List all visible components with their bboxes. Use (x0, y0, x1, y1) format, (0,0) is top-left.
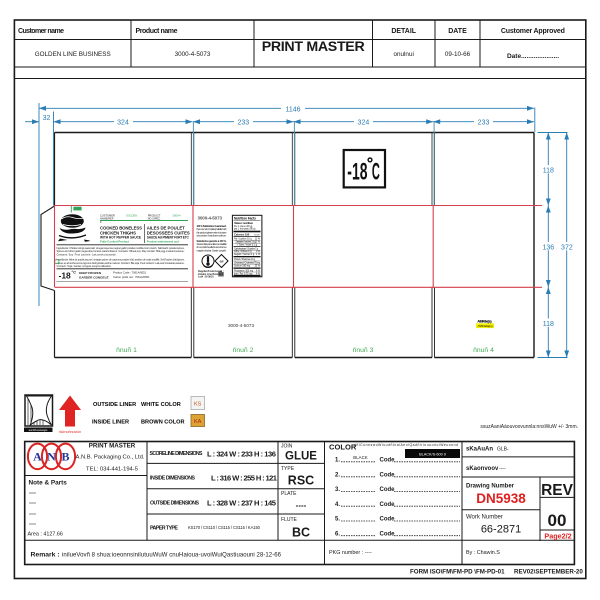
svg-text:GLB-: GLB- (497, 447, 509, 453)
svg-text:NO./SPEC :: NO./SPEC : (148, 216, 162, 220)
svg-text:Per 1 piece (90 g): Per 1 piece (90 g) (234, 225, 252, 228)
svg-text:GOLDEN: GOLDEN (126, 214, 137, 218)
svg-text:DATE: DATE (448, 28, 467, 35)
svg-text:By : Chawin.S: By : Chawin.S (466, 550, 500, 556)
svg-text:DETAIL: DETAIL (391, 28, 416, 35)
svg-text:Customer Approved: Customer Approved (501, 28, 565, 35)
svg-text:3000-4-5073: 3000-4-5073 (228, 323, 254, 328)
svg-text:PLATE: PLATE (281, 491, 297, 497)
svg-text:324: 324 (358, 120, 370, 127)
svg-text:ňnuñ 2: ňnuñ 2 (233, 347, 254, 354)
svg-text:09-10-66: 09-10-66 (445, 51, 471, 58)
svg-text:COLOR: COLOR (329, 443, 357, 452)
svg-text:BLACK: BLACK (353, 455, 367, 460)
svg-text:REV02\SEPTEMBER-20: REV02\SEPTEMBER-20 (514, 569, 583, 576)
svg-text:3.: 3. (335, 487, 340, 493)
svg-text:OUTSIDE DIMENSIONS: OUTSIDE DIMENSIONS (150, 501, 200, 507)
svg-text:1 %: 1 % (256, 254, 260, 256)
svg-text:Note & Parts: Note & Parts (29, 480, 68, 487)
svg-text:3000-4-5073: 3000-4-5073 (175, 51, 211, 58)
svg-text:Drawing Number: Drawing Number (466, 484, 515, 490)
svg-text:sKaonvoov: sKaonvoov (466, 466, 499, 472)
svg-text:onulnui: onulnui (394, 51, 414, 58)
svg-text:13 %: 13 % (255, 242, 260, 244)
svg-text:Code: Code (380, 531, 396, 537)
svg-text:Date.....................: Date..................... (507, 53, 559, 60)
svg-text:233: 233 (478, 120, 490, 127)
svg-text:inilueVovñ 8 shua:ioeonnsinilu: inilueVovñ 8 shua:ioeonnsinilutuuWuW cnu… (62, 553, 282, 559)
svg-text:sKaAuAn: sKaAuAn (466, 447, 493, 453)
svg-text:Contains: Soy. Peut contenir:: Contains: Soy. Peut contenir: Lait,oeufs… (57, 252, 117, 256)
svg-text:KS170 / CS110 / CS115 / CS115: KS170 / CS110 / CS115 / CS115 / KA150 (188, 525, 261, 530)
svg-text:----: ---- (296, 501, 307, 510)
svg-text:Calories 190: Calories 190 (234, 233, 250, 237)
svg-text:BLACK/S-600 9: BLACK/S-600 9 (419, 453, 446, 457)
svg-text:118: 118 (543, 321, 554, 328)
svg-text:Cholesterol / Cholestérol 75 m: Cholesterol / Cholestérol 75 mg (234, 261, 261, 264)
svg-text:00: 00 (548, 511, 567, 530)
svg-text:A&B Packaging: A&B Packaging (477, 320, 492, 324)
svg-text:-18: -18 (347, 159, 367, 186)
svg-text:Nutrition Facts: Nutrition Facts (234, 216, 256, 220)
svg-text:6.: 6. (335, 531, 340, 537)
svg-text:GARDER CONGELÉ: GARDER CONGELÉ (79, 275, 109, 280)
svg-text:PRINT MASTER: PRINT MASTER (262, 39, 365, 55)
svg-text:TEL: 034-441-194-5: TEL: 034-441-194-5 (86, 467, 138, 473)
svg-text:°C: °C (72, 270, 77, 275)
svg-text:3000-4: 3000-4 (173, 214, 182, 218)
svg-text:A: A (33, 450, 42, 464)
svg-text:NAME/REF :: NAME/REF : (100, 216, 115, 220)
svg-text:RSC: RSC (288, 474, 314, 488)
svg-text:of purchase. Keep frozen until: of purchase. Keep frozen until use. (197, 235, 227, 238)
svg-text:13 %: 13 % (255, 239, 260, 241)
svg-text:FLUTE: FLUTE (281, 517, 298, 523)
svg-text:Code: Code (380, 458, 396, 464)
svg-text:BC: BC (292, 526, 310, 540)
svg-text:N: N (47, 450, 56, 464)
svg-text:136: 136 (542, 244, 554, 251)
svg-text:1.: 1. (335, 458, 340, 464)
svg-text:25 %: 25 % (255, 266, 260, 268)
svg-text:----: ---- (499, 466, 506, 472)
svg-text:Code: Code (380, 473, 396, 479)
svg-text:OUTSIDE LINER: OUTSIDE LINER (93, 402, 136, 408)
svg-text:Carbohydrate / Glucides 7 g: Carbohydrate / Glucides 7 g (234, 247, 259, 250)
svg-text:Product Code : 7061A/6051: Product Code : 7061A/6051 (113, 271, 147, 275)
svg-text:Work Number: Work Number (466, 515, 503, 521)
svg-text:PAPER TYPE: PAPER TYPE (150, 526, 178, 532)
svg-text:BROWN COLOR: BROWN COLOR (141, 420, 185, 426)
svg-text:3000-4-5073: 3000-4-5073 (198, 216, 223, 221)
svg-text:ňnuñ 3: ňnuñ 3 (353, 347, 374, 354)
svg-text:Lot# : B 09/10: Lot# : B 09/10 (198, 276, 214, 279)
svg-text:PKG number : ----: PKG number : ---- (329, 550, 372, 556)
svg-text:Produit entièrement cuit: Produit entièrement cuit (147, 240, 179, 244)
svg-text:riArnoňnuviún: riArnoňnuviún (59, 430, 81, 434)
svg-text:32: 32 (43, 115, 51, 122)
svg-text:Contient: Soja. Garder congelé: Contient: Soja. Garder congelé jusqu'à u… (57, 264, 112, 268)
svg-text:Fat / Lipides 10 g: Fat / Lipides 10 g (234, 238, 252, 241)
svg-text:Customer name: Customer name (18, 28, 64, 35)
svg-text:324: 324 (117, 120, 129, 127)
svg-text:ANB Packaging: ANB Packaging (478, 324, 493, 328)
svg-text:Fibre / Fibres 0 g: Fibre / Fibres 0 g (234, 250, 252, 253)
svg-text:Code: Code (380, 502, 396, 508)
svg-text:ňnuñ 1: ňnuñ 1 (116, 347, 137, 354)
svg-text:% DV*: % DV* (254, 235, 260, 237)
svg-text:118: 118 (543, 167, 554, 174)
svg-text:Remark :: Remark : (31, 552, 60, 559)
svg-text:Product name: Product name (136, 28, 178, 35)
svg-text:372: 372 (561, 244, 573, 251)
svg-text:ňnuñ 4: ňnuñ 4 (473, 347, 494, 354)
svg-text:4.: 4. (335, 502, 340, 508)
svg-text:ssuzAaniAáouvoovunnla:nnsWuW +: ssuzAaniAáouvoovunnla:nnsWuW +/- 3mm. (480, 424, 578, 430)
svg-text:L : 316 W : 255 H : 121: L : 316 W : 255 H : 121 (211, 474, 278, 483)
svg-text:Saturated / saturés 2.5 g: Saturated / saturés 2.5 g (236, 241, 257, 244)
svg-text:KEEP FROZEN: KEEP FROZEN (79, 271, 102, 275)
svg-text:Carton poids net : 7061A/6051: Carton poids net : 7061A/6051 (113, 275, 150, 279)
svg-text:L : 324 W : 233 H : 136: L : 324 W : 233 H : 136 (207, 450, 276, 459)
svg-text:GLUE: GLUE (285, 451, 317, 463)
svg-text:233: 233 (237, 120, 249, 127)
svg-text:par 1 morceau (90 g): par 1 morceau (90 g) (234, 228, 256, 231)
svg-text:Valeur nutritive: Valeur nutritive (234, 221, 253, 225)
svg-text:KS: KS (194, 402, 202, 408)
svg-text:66-2871: 66-2871 (481, 524, 521, 536)
svg-text:REV: REV (541, 482, 574, 499)
svg-text:SCORELINE DIMENSIONS: SCORELINE DIMENSIONS (150, 451, 204, 457)
svg-text:dñlConnswuWiuudñlnaiAeoiQadñir: dñlConnswuWiuudñlnaiAeoiQadñirinuuonoiWe… (354, 443, 458, 447)
svg-text:Sodium 580 mg: Sodium 580 mg (234, 266, 251, 268)
svg-text:TYPE: TYPE (281, 466, 295, 472)
svg-text:aunWnuunasgiu: aunWnuunasgiu (29, 428, 48, 432)
svg-text:DN5938: DN5938 (476, 491, 526, 506)
svg-text:KA: KA (194, 419, 202, 425)
svg-text:A.N.B. Packaging Co., Ltd.: A.N.B. Packaging Co., Ltd. (76, 455, 145, 461)
svg-text:Area : 4127.66: Area : 4127.66 (28, 532, 63, 538)
svg-text:Code: Code (380, 487, 396, 493)
svg-text:Fully Cooked Product: Fully Cooked Product (100, 240, 129, 244)
svg-text:JOIN: JOIN (281, 444, 293, 450)
svg-text:WHITE COLOR: WHITE COLOR (141, 402, 181, 408)
svg-text:-18: -18 (59, 271, 72, 281)
svg-text:L : 328 W : 237 H : 145: L : 328 W : 237 H : 145 (207, 499, 277, 508)
svg-text:B: B (61, 450, 69, 464)
svg-text:Potassium 300 mg: Potassium 300 mg (234, 269, 254, 272)
svg-text:2.: 2. (335, 473, 340, 479)
svg-text:magasin d'achat. Garder congel: magasin d'achat. Garder congelé. (197, 249, 227, 252)
svg-text:GOLDEN LINE BUSINESS: GOLDEN LINE BUSINESS (35, 51, 111, 58)
svg-text:Sugars / Sucres 1 g: Sugars / Sucres 1 g (234, 253, 255, 256)
svg-text:Code: Code (380, 517, 396, 523)
svg-text:5.: 5. (335, 517, 340, 523)
svg-text:C: C (372, 159, 380, 186)
svg-text:Page2/2: Page2/2 (544, 532, 571, 541)
svg-text:INSIDE DIMENSIONS: INSIDE DIMENSIONS (150, 476, 196, 482)
svg-text:FORM ISO\FM\FM-PD \FM-PD-01: FORM ISO\FM\FM-PD \FM-PD-01 (410, 569, 505, 576)
svg-text:Protein / Protéines 14 g: Protein / Protéines 14 g (234, 258, 256, 261)
svg-text:PRINT MASTER: PRINT MASTER (89, 443, 136, 450)
svg-text:-18°: -18° (219, 260, 225, 264)
svg-text:INSIDE LINER: INSIDE LINER (92, 420, 129, 426)
svg-text:1146: 1146 (285, 106, 300, 113)
